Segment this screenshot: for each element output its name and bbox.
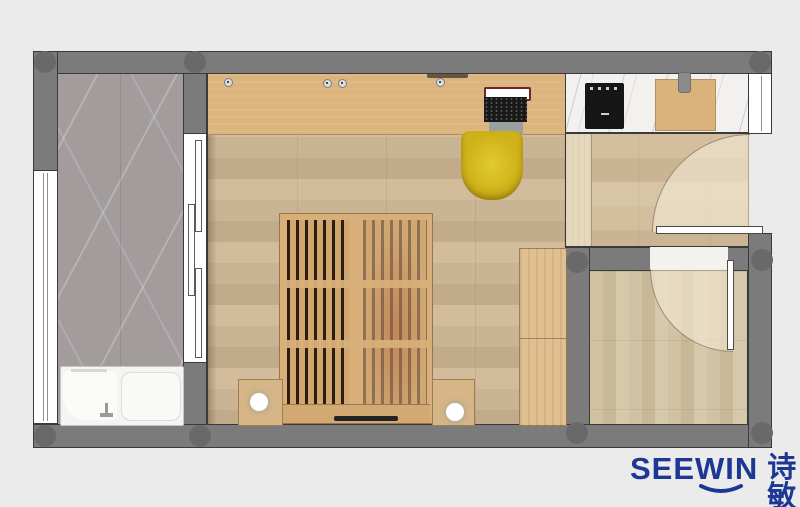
wall-bottom bbox=[33, 424, 772, 448]
bed-slats-left bbox=[287, 220, 349, 404]
sliding-door bbox=[183, 133, 207, 363]
bathtub-rim-detail bbox=[71, 369, 107, 372]
desk-knob bbox=[323, 79, 332, 88]
window-pane bbox=[761, 76, 762, 131]
wall-rail bbox=[427, 73, 468, 78]
interior-door-swing bbox=[650, 269, 733, 352]
nightstand-right bbox=[432, 379, 475, 426]
main-room bbox=[207, 73, 566, 425]
logo-text-chinese: 诗敏 bbox=[767, 453, 800, 507]
seewin-logo: SEEWIN 诗敏 bbox=[630, 453, 800, 507]
column bbox=[184, 51, 206, 73]
desk-knob bbox=[436, 78, 445, 87]
logo-smile-icon bbox=[698, 484, 744, 495]
desk-knob bbox=[224, 78, 233, 87]
platform-slat-bed bbox=[279, 213, 433, 424]
cutting-board-handle bbox=[678, 72, 691, 93]
bathroom bbox=[57, 73, 184, 425]
desk-chair-seat bbox=[467, 136, 517, 188]
sliding-door-panel bbox=[195, 140, 202, 232]
second-room bbox=[589, 270, 748, 425]
bed-crossbar bbox=[287, 280, 427, 288]
wall-room2-top-left bbox=[589, 247, 651, 271]
column bbox=[34, 425, 56, 447]
bathtub-basin bbox=[121, 372, 181, 421]
wall-bathroom-top bbox=[183, 73, 207, 134]
laptop-keyboard bbox=[484, 97, 527, 122]
kitchen-counter bbox=[565, 73, 749, 133]
column bbox=[189, 425, 211, 447]
window-pane bbox=[47, 173, 48, 421]
cooktop-control bbox=[598, 87, 601, 90]
bed-handle bbox=[334, 416, 398, 421]
wall-room2-left bbox=[565, 247, 590, 425]
sliding-door-panel bbox=[195, 268, 202, 358]
cooktop bbox=[585, 83, 624, 129]
desk-knob bbox=[338, 79, 347, 88]
column bbox=[566, 251, 588, 273]
wall-top bbox=[33, 51, 772, 74]
left-window bbox=[33, 170, 58, 424]
top-right-window bbox=[748, 73, 772, 134]
column bbox=[566, 422, 588, 444]
logo-text-latin: SEEWIN bbox=[630, 453, 758, 484]
sliding-door-panel bbox=[188, 204, 195, 296]
wardrobe bbox=[519, 248, 567, 426]
bed-crossbar bbox=[287, 340, 427, 348]
cooktop-mark bbox=[601, 113, 609, 115]
entry-threshold-strip bbox=[566, 134, 592, 246]
floor-plan: SEEWIN 诗敏 bbox=[0, 0, 800, 507]
nightstand-left bbox=[238, 379, 283, 426]
cooktop-control bbox=[614, 87, 617, 90]
column bbox=[34, 51, 56, 73]
wardrobe-seam bbox=[520, 338, 566, 339]
column bbox=[751, 249, 773, 271]
entry-door bbox=[656, 226, 763, 234]
bathtub-faucet-handle bbox=[100, 413, 113, 417]
cooktop-control bbox=[590, 87, 593, 90]
window-pane bbox=[43, 173, 44, 421]
cooktop-control bbox=[606, 87, 609, 90]
column bbox=[751, 422, 773, 444]
wall-bathroom-bottom bbox=[183, 362, 207, 425]
column bbox=[749, 51, 771, 73]
interior-door bbox=[727, 260, 734, 350]
table-lamp-right bbox=[446, 403, 464, 421]
entry-door-swing bbox=[652, 134, 750, 232]
desk-chair bbox=[461, 131, 523, 200]
room2-doorway bbox=[650, 247, 728, 271]
bed-slats-right bbox=[363, 220, 427, 404]
bathtub bbox=[60, 366, 184, 426]
table-lamp-left bbox=[250, 393, 268, 411]
